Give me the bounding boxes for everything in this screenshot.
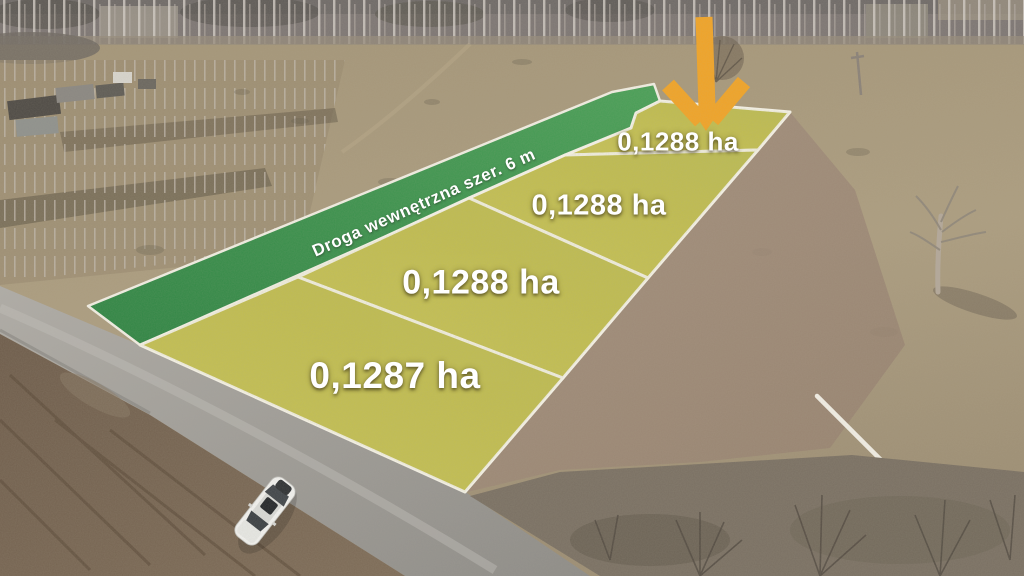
plot-4-area-label: 0,1287 ha (309, 355, 480, 397)
plot-2-area-label: 0,1288 ha (531, 190, 666, 223)
plot-3-area-label: 0,1288 ha (402, 264, 560, 303)
aerial-photo: Droga wewnętrzna szer. 6 m 0,1288 ha 0,1… (0, 0, 1024, 576)
plot-1-area-label: 0,1288 ha (617, 127, 739, 158)
